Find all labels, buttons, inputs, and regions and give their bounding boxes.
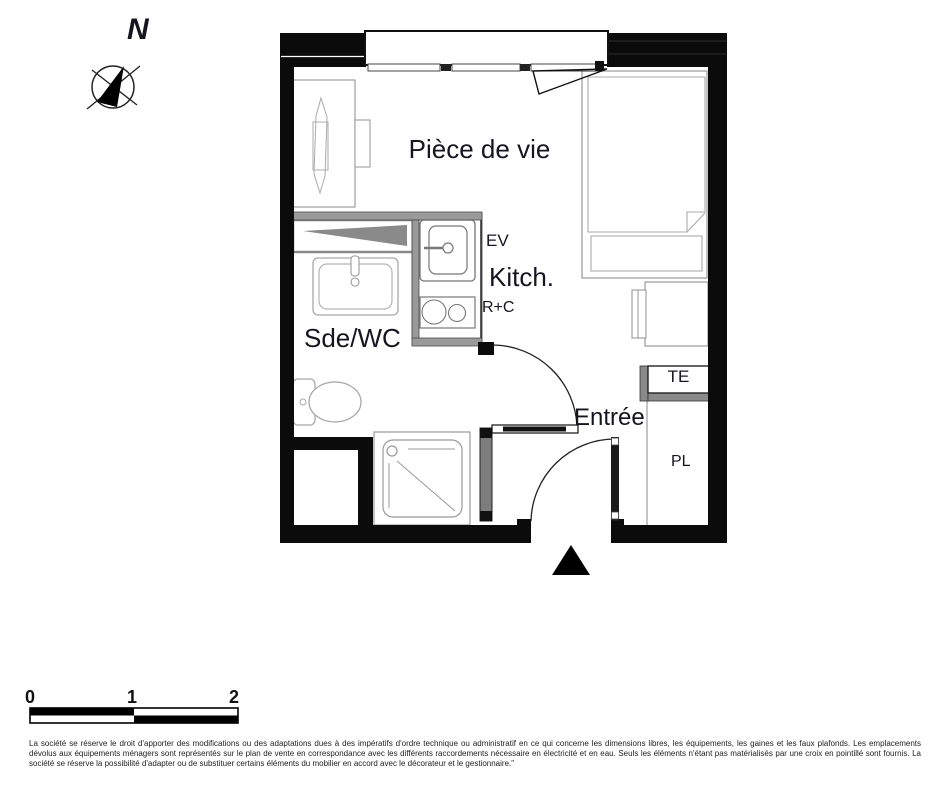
floor-plan-drawing — [0, 0, 950, 800]
window-mullion — [441, 64, 451, 71]
entrance-door — [531, 437, 619, 521]
nightstand-chair — [632, 290, 646, 338]
toilet — [293, 379, 361, 425]
mirror-shelf — [293, 220, 414, 252]
room-label-kitchen: Kitch. — [489, 262, 554, 293]
toilet-bowl — [309, 382, 361, 422]
room-label-bathroom: Sde/WC — [304, 323, 401, 354]
kitchen-sink — [420, 220, 475, 281]
door-swing-arc — [531, 439, 615, 521]
bath-door-stop — [478, 342, 494, 355]
scale-tick-0: 0 — [25, 687, 35, 708]
room-label-entrance: Entrée — [574, 404, 645, 432]
equipment-label-electrical-panel: TE — [648, 367, 709, 387]
wall-bottom-right — [611, 525, 727, 543]
washbasin — [313, 256, 398, 315]
scale-tick-2: 2 — [229, 687, 239, 708]
wall-bottom-left — [280, 525, 531, 543]
entry-partition-post — [480, 428, 492, 521]
door-jamb-left — [517, 519, 531, 543]
basin-faucet — [351, 256, 359, 276]
cooktop — [420, 297, 475, 328]
mattress — [588, 77, 705, 232]
room-label-living: Pièce de vie — [377, 134, 582, 165]
wall-duct-niche — [358, 450, 373, 526]
pillow-band — [591, 236, 702, 271]
equipment-label-fridge-cooktop: R+C — [482, 299, 514, 317]
kitchen-counter — [412, 213, 482, 345]
bed — [582, 71, 707, 278]
entrance-marker-triangle — [552, 545, 590, 575]
desk-chair — [355, 120, 370, 167]
desk-living — [292, 80, 370, 207]
legal-disclaimer: La société se réserve le droit d'apporte… — [29, 739, 921, 769]
nightstand — [632, 282, 708, 346]
wall-right — [708, 33, 727, 543]
wall-left — [280, 33, 294, 543]
equipment-label-closet: PL — [671, 453, 691, 471]
compass-needle — [97, 66, 124, 107]
north-label: N — [127, 13, 149, 47]
window — [365, 31, 608, 94]
wall-bath-south — [280, 437, 373, 450]
door-swing-arc — [494, 345, 577, 426]
door-leaf — [611, 437, 619, 521]
compass-rose-icon — [87, 66, 140, 109]
scale-bar — [30, 708, 238, 723]
door-jamb-right — [611, 519, 624, 543]
bathroom-door — [492, 345, 578, 433]
floor-plan-page: N Pièce de vie Kitch. Sde/WC Entrée EV R… — [0, 0, 950, 800]
scale-tick-1: 1 — [127, 687, 137, 708]
equipment-label-sink: EV — [486, 231, 509, 251]
shower-tray — [374, 432, 470, 525]
window-mullion — [520, 64, 530, 71]
